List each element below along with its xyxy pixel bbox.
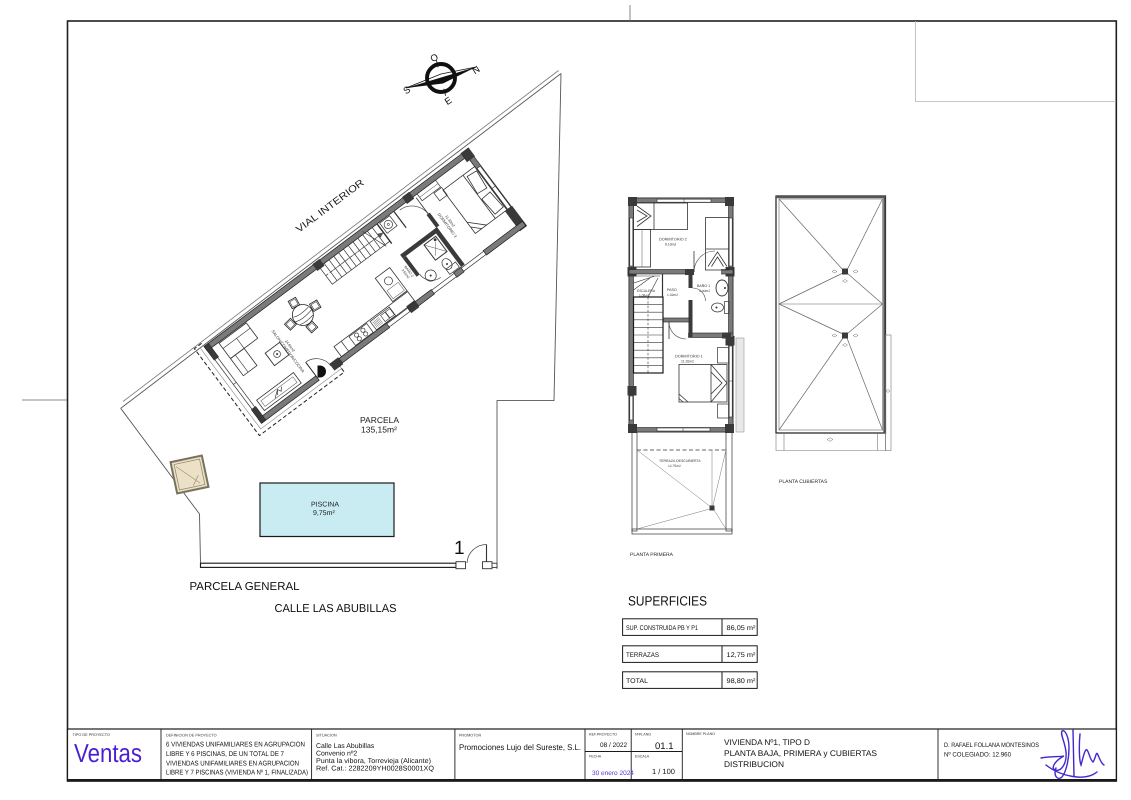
svg-text:PLANTA BAJA, PRIMERA y CUBIERT: PLANTA BAJA, PRIMERA y CUBIERTAS [724,749,878,758]
svg-text:DEFINICION DE PROYECTO: DEFINICION DE PROYECTO [166,734,217,738]
svg-text:PASO: PASO [667,288,677,292]
svg-text:PARCELA GENERAL: PARCELA GENERAL [190,581,301,593]
svg-text:LIBRE Y 7 PISCINAS (VIVIENDA N: LIBRE Y 7 PISCINAS (VIVIENDA Nº 1, FINAL… [166,770,308,777]
svg-text:Convenio nº2: Convenio nº2 [316,751,357,758]
svg-text:86,05 m²: 86,05 m² [727,625,757,632]
svg-text:01.1: 01.1 [655,741,674,752]
svg-text:PARCELA: PARCELA [360,415,399,425]
svg-text:Ventas: Ventas [74,738,142,768]
svg-text:TOTAL: TOTAL [626,678,648,685]
svg-text:TERRAZAS: TERRAZAS [626,652,659,659]
svg-text:REF.PROYECTO: REF.PROYECTO [589,733,617,737]
svg-text:PLANTA CUBIERTAS: PLANTA CUBIERTAS [779,479,828,485]
svg-text:PISCINA: PISCINA [311,502,339,509]
svg-text:1 / 100: 1 / 100 [652,767,675,776]
svg-text:NOMBRE PLANO: NOMBRE PLANO [686,732,715,736]
svg-text:VIVIENDAS UNIFAMILIARES EN AGR: VIVIENDAS UNIFAMILIARES EN AGRUPACION [166,760,299,767]
svg-text:30 enero 2024: 30 enero 2024 [592,770,634,777]
svg-text:SUP. CONSTRUIDA PB Y P1: SUP. CONSTRUIDA PB Y P1 [626,625,698,632]
svg-text:SITUACION: SITUACION [316,734,337,738]
svg-text:135,15m²: 135,15m² [361,425,397,435]
svg-text:Nº COLEGIADO: 12.960: Nº COLEGIADO: 12.960 [944,752,1011,759]
svg-text:PROMOTOR: PROMOTOR [459,734,482,738]
svg-text:LIBRE Y 6 PISCINAS, DE UN TOTA: LIBRE Y 6 PISCINAS, DE UN TOTAL DE 7 [166,751,284,758]
svg-text:08 / 2022: 08 / 2022 [600,742,627,749]
svg-text:VIVIENDA Nº1, TIPO D: VIVIENDA Nº1, TIPO D [724,738,810,747]
svg-text:3.00m2: 3.00m2 [699,289,710,293]
svg-text:1.08m2: 1.08m2 [639,294,650,298]
svg-text:98,80 m²: 98,80 m² [727,678,757,685]
svg-text:6 VIVIENDAS UNIFAMILIARES EN A: 6 VIVIENDAS UNIFAMILIARES EN AGRUPACION [166,742,305,749]
svg-text:12,75 m²: 12,75 m² [727,652,757,659]
svg-text:Calle Las Abubillas: Calle Las Abubillas [316,743,375,750]
svg-text:ESCALERA: ESCALERA [637,289,656,293]
svg-text:D. RAFAEL FOLLANA MONTESINOS: D. RAFAEL FOLLANA MONTESINOS [944,742,1039,749]
svg-text:DORMITORIO 2: DORMITORIO 2 [659,238,687,242]
svg-text:BAÑO 1: BAÑO 1 [697,283,710,288]
svg-text:SUPERFICIES: SUPERFICIES [628,594,707,609]
svg-text:8.10m2: 8.10m2 [665,243,676,247]
svg-text:Punta la vibora, Torrevieja (A: Punta la vibora, Torrevieja (Alicante) [316,758,431,765]
svg-text:Ref. Cat.: 2282209YH0028S0001X: Ref. Cat.: 2282209YH0028S0001XQ [316,766,435,773]
svg-text:11.20m2: 11.20m2 [681,360,694,364]
svg-text:TERRAZA DESCUBIERTA: TERRAZA DESCUBIERTA [659,459,701,463]
svg-text:9,75m²: 9,75m² [313,510,335,517]
svg-text:DISTRIBUCION: DISTRIBUCION [724,760,784,769]
svg-text:12.75m2: 12.75m2 [668,464,681,468]
svg-text:CALLE LAS ABUBILLAS: CALLE LAS ABUBILLAS [275,603,397,615]
svg-text:TIPO DE PROYECTO: TIPO DE PROYECTO [73,733,111,737]
svg-text:DORMITORIO 1: DORMITORIO 1 [675,355,703,359]
svg-text:1: 1 [454,538,465,559]
svg-text:PLANTA PRIMERA: PLANTA PRIMERA [630,552,674,558]
svg-text:Promociones Lujo del Sureste,: Promociones Lujo del Sureste, S.L. [459,743,581,752]
svg-text:NºPLANO: NºPLANO [635,733,651,737]
svg-text:ESCALA: ESCALA [635,755,650,759]
svg-text:FECHA: FECHA [589,755,602,759]
svg-text:1.32m2: 1.32m2 [667,293,678,297]
